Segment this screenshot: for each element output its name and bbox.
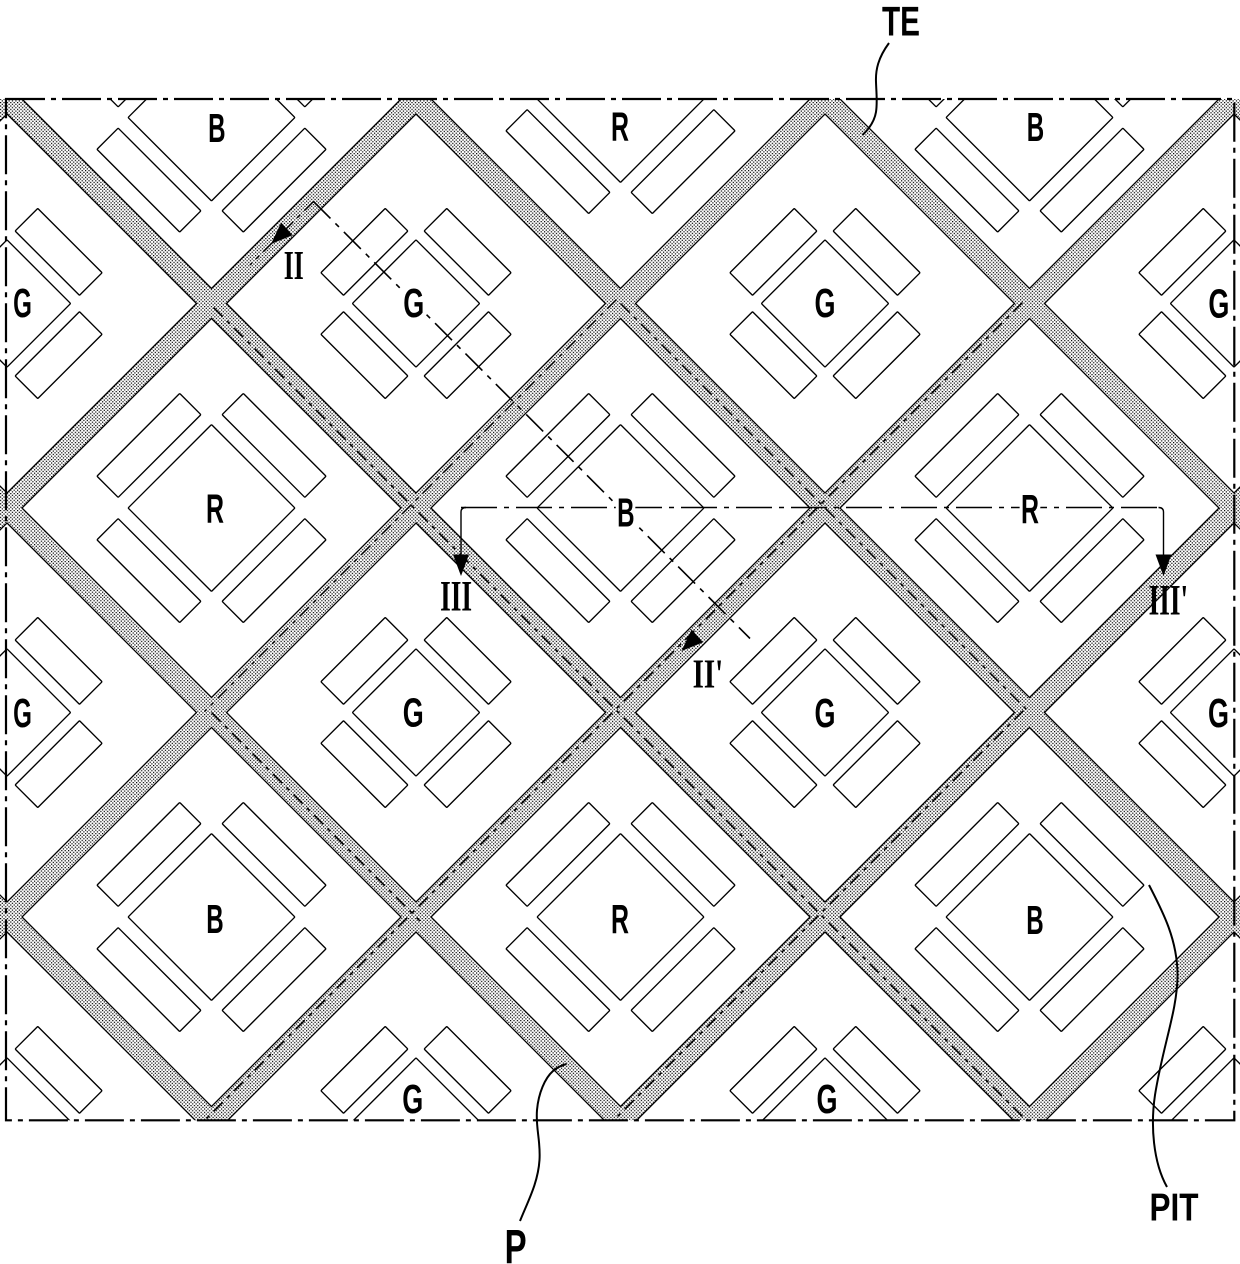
svg-text:B: B bbox=[1026, 897, 1043, 943]
svg-text:II: II bbox=[284, 242, 304, 288]
svg-text:R: R bbox=[1021, 486, 1039, 532]
svg-text:G: G bbox=[403, 690, 424, 736]
svg-text:G: G bbox=[403, 280, 424, 326]
svg-text:B: B bbox=[1027, 104, 1044, 150]
svg-text:B: B bbox=[206, 896, 223, 942]
svg-text:III: III bbox=[440, 574, 472, 621]
svg-text:B: B bbox=[208, 105, 225, 151]
svg-text:G: G bbox=[815, 280, 836, 326]
svg-text:G: G bbox=[815, 690, 836, 736]
svg-text:G: G bbox=[1208, 281, 1229, 327]
svg-text:B: B bbox=[617, 490, 634, 536]
svg-text:P: P bbox=[505, 1221, 527, 1264]
svg-text:G: G bbox=[817, 1076, 838, 1122]
svg-text:TE: TE bbox=[882, 0, 920, 45]
svg-text:G: G bbox=[13, 280, 32, 326]
svg-text:II': II' bbox=[693, 650, 724, 696]
svg-text:R: R bbox=[611, 103, 629, 149]
svg-text:R: R bbox=[206, 486, 224, 532]
svg-text:G: G bbox=[402, 1076, 423, 1122]
svg-text:R: R bbox=[611, 896, 629, 942]
svg-text:PIT: PIT bbox=[1150, 1187, 1199, 1230]
svg-text:III': III' bbox=[1149, 578, 1189, 625]
svg-text:G: G bbox=[13, 690, 32, 736]
svg-text:G: G bbox=[1208, 690, 1229, 736]
